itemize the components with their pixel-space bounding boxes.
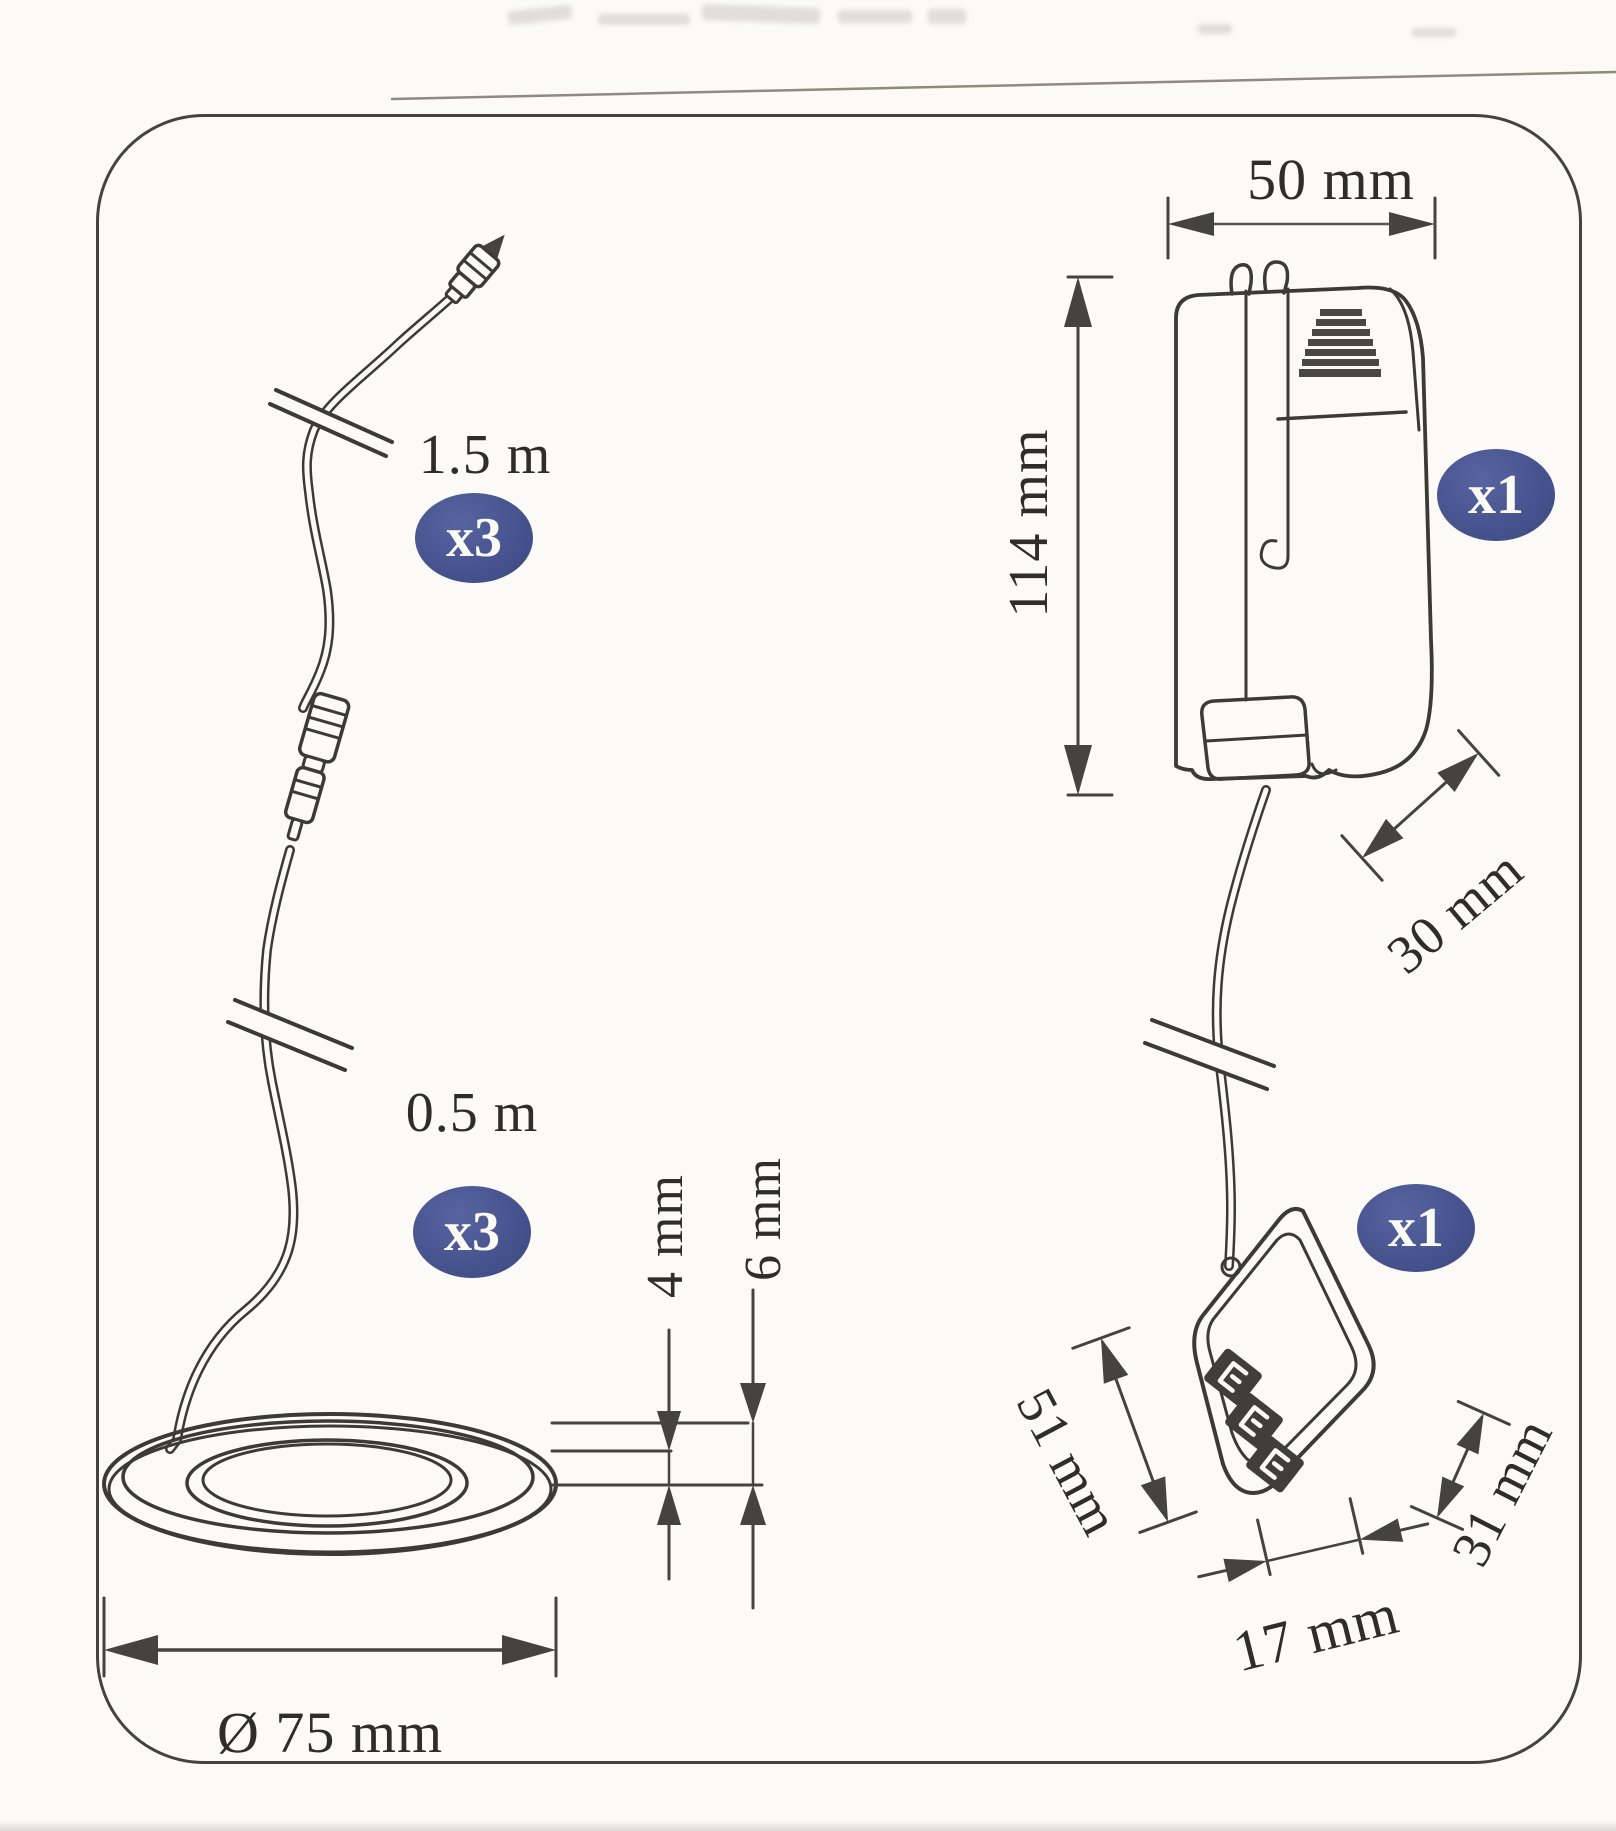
badge-text: x1	[1388, 1196, 1444, 1260]
label-puck-total-height: 6 mm	[738, 1157, 790, 1281]
driver-output-cable-drawing	[1145, 790, 1274, 1266]
driver-vent-icon	[1299, 309, 1381, 377]
cable-break-mark-right	[1145, 1020, 1274, 1089]
puck-light-drawing	[104, 1414, 556, 1554]
scan-artifact-line	[392, 72, 1616, 99]
scanned-manual-page: 1.5 m x3 0.5 m x3 4 mm 6 mm Ø 75 mm 50 m…	[0, 0, 1616, 1831]
label-puck-recess-height: 4 mm	[640, 1174, 692, 1298]
dimension-puck-heights	[552, 1290, 766, 1608]
cable-break-mark-lower	[228, 1000, 352, 1070]
dimension-distributor-width	[1189, 1483, 1431, 1590]
driver-box-drawing	[1176, 262, 1432, 779]
label-extension-cable-length: 1.5 m	[419, 427, 552, 483]
badge-extension-cable-qty: x3	[415, 493, 533, 583]
label-puck-cable-length: 0.5 m	[406, 1085, 539, 1141]
badge-text: x1	[1468, 463, 1524, 527]
dimension-driver-height	[1064, 277, 1112, 795]
badge-distributor-qty: x1	[1357, 1184, 1475, 1272]
label-puck-diameter: Ø 75 mm	[217, 1704, 443, 1762]
scan-edge-shadow	[0, 1821, 1616, 1831]
junction-box-drawing	[1194, 1209, 1373, 1494]
dimension-diameter-75	[104, 1598, 556, 1676]
badge-puck-light-qty: x3	[413, 1186, 531, 1278]
cable-plug-icon	[439, 225, 516, 309]
inline-connector-icon	[275, 692, 350, 844]
badge-driver-qty: x1	[1437, 449, 1555, 541]
badge-text: x3	[446, 506, 502, 570]
badge-text: x3	[444, 1200, 500, 1264]
label-driver-height: 114 mm	[1001, 428, 1057, 617]
label-driver-width: 50 mm	[1247, 151, 1415, 209]
diagram-line-art	[0, 0, 1616, 1831]
